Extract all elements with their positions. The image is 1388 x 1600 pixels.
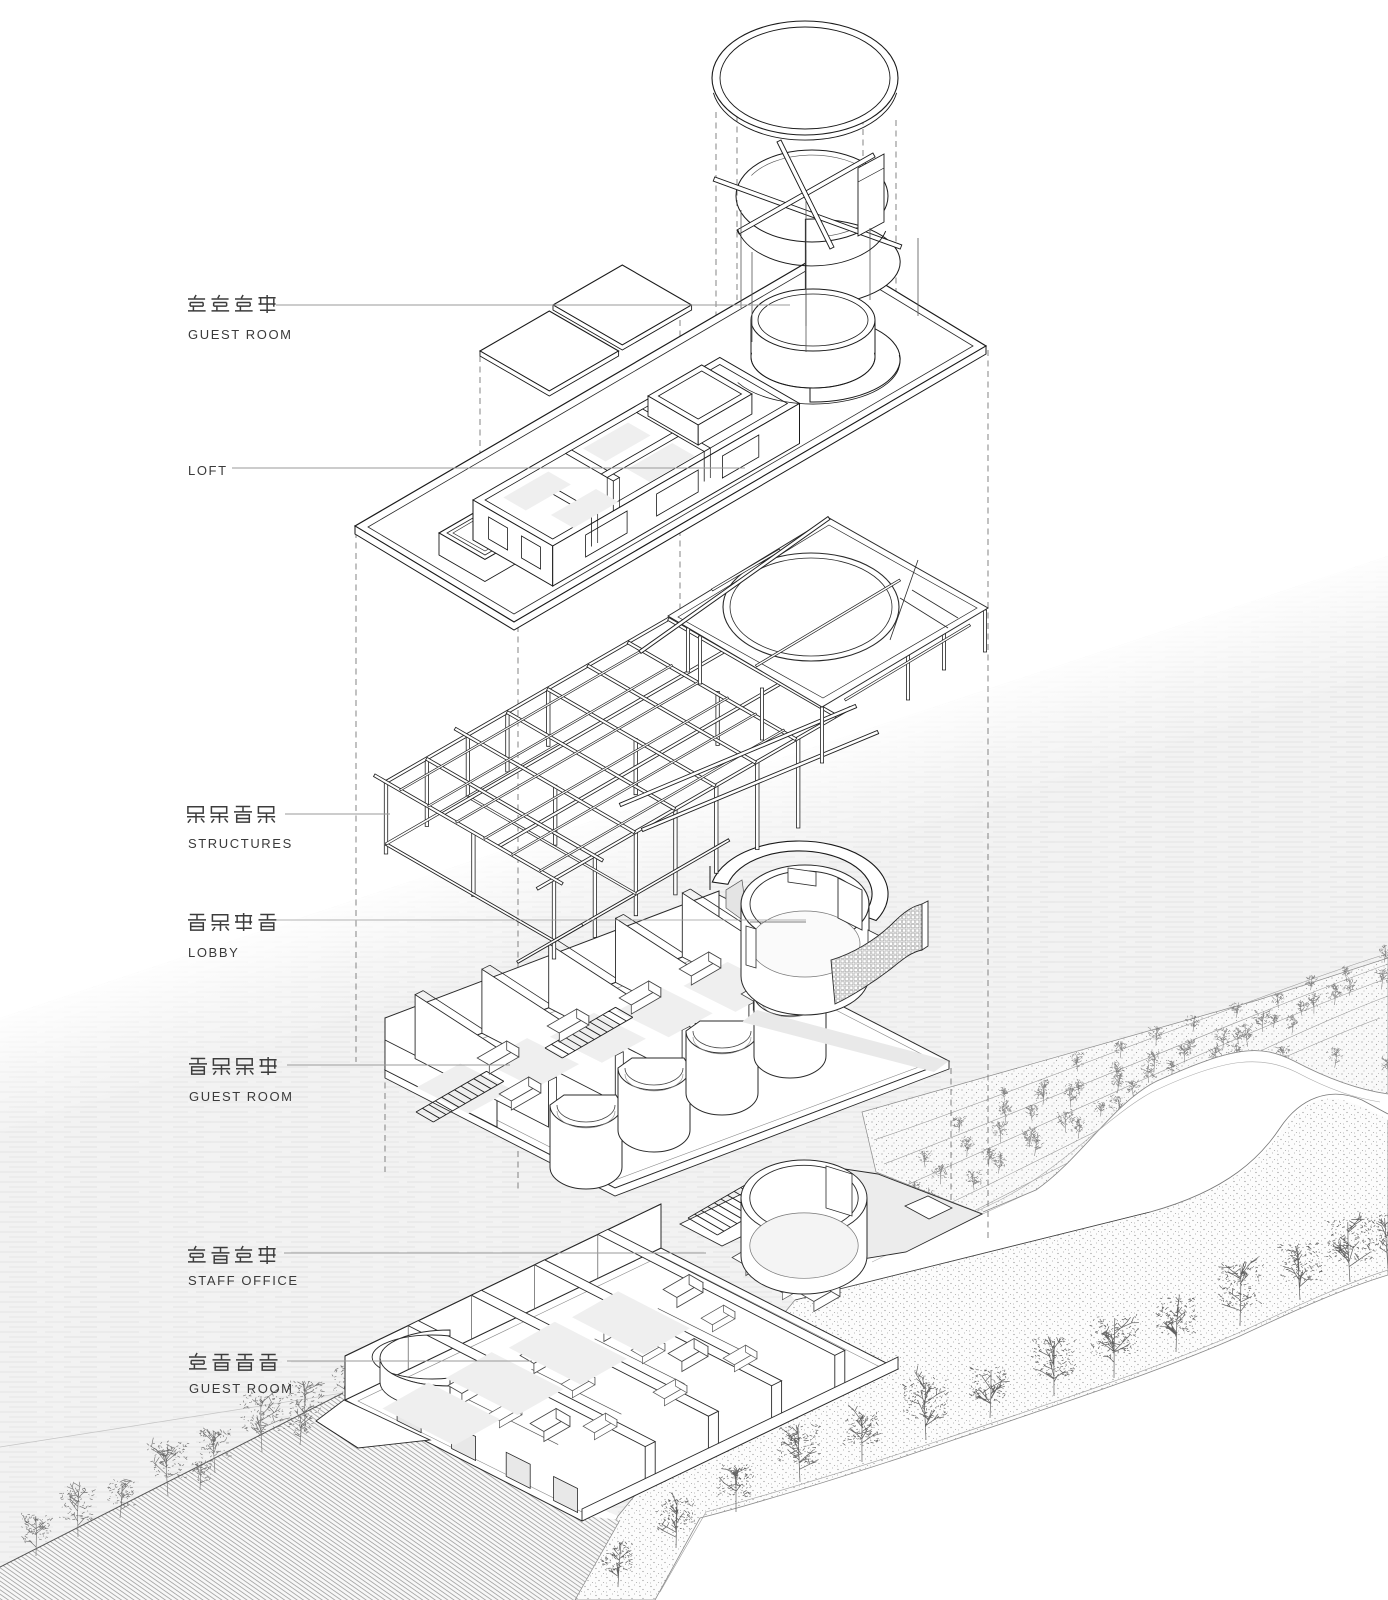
svg-text:STAFF OFFICE: STAFF OFFICE xyxy=(188,1273,299,1288)
svg-text:GUEST ROOM: GUEST ROOM xyxy=(189,1089,294,1104)
svg-text:LOBBY: LOBBY xyxy=(188,945,239,960)
svg-text:GUEST ROOM: GUEST ROOM xyxy=(189,1381,294,1396)
svg-text:LOFT: LOFT xyxy=(188,463,228,478)
svg-text:STRUCTURES: STRUCTURES xyxy=(188,836,293,851)
svg-text:GUEST ROOM: GUEST ROOM xyxy=(188,327,293,342)
